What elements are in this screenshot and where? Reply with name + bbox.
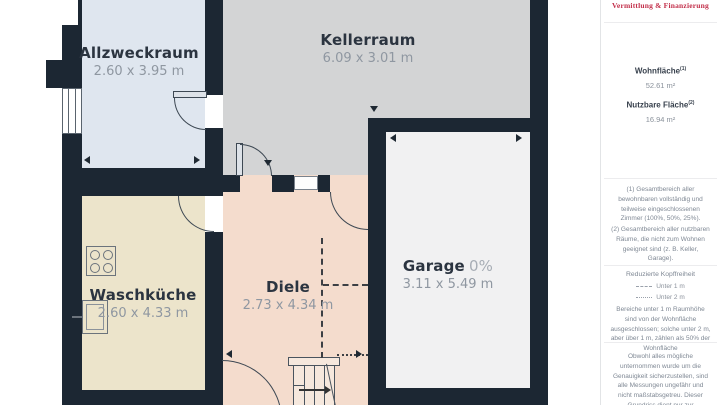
wall (368, 388, 548, 405)
room-name: Kellerraum (320, 31, 415, 49)
wall (368, 118, 548, 132)
stair-tread (314, 366, 315, 405)
wall (46, 60, 62, 88)
divider (604, 265, 717, 266)
wall (318, 175, 330, 192)
cooktop-symbol (86, 246, 116, 276)
disclaimer: Obwohl alles mögliche unternommen wurde … (601, 352, 720, 405)
divider (604, 22, 717, 23)
wall (62, 25, 82, 405)
legend-label: Unter 1 m (656, 283, 685, 290)
door-leaf (173, 91, 207, 98)
room-garage (386, 118, 530, 388)
wall (62, 168, 223, 196)
room-label-allzweckraum: Allzweckraum 2.60 x 3.95 m (79, 44, 199, 79)
wall-niche (294, 176, 318, 190)
dashed-line-sample (636, 286, 652, 287)
stair-tread (294, 385, 304, 386)
room-label-diele: Diele 2.73 x 4.34 m (243, 278, 334, 313)
stair-direction-arrow (299, 389, 325, 391)
room-dimensions: 2.73 x 4.34 m (243, 298, 334, 313)
room-name: Diele (243, 278, 334, 296)
footnote-ref: (2) (688, 100, 694, 106)
wall (205, 232, 223, 405)
divider (604, 342, 717, 343)
wall (205, 0, 223, 95)
legend-label: Unter 2 m (656, 294, 685, 301)
brand-tagline: Vermittlung & Finanzierung (601, 1, 720, 10)
stair-direction-arrow (325, 386, 331, 394)
footnote-ref: (1) (680, 66, 686, 72)
room-name: Allzweckraum (79, 44, 199, 62)
room-label-garage: Garage0% 3.11 x 5.49 m (403, 257, 494, 292)
dimension-arrow (356, 350, 362, 358)
room-area-share: 0% (469, 257, 493, 275)
room-label-waschkueche: Waschküche 2.60 x 4.33 m (89, 286, 196, 321)
dimension-arrow (84, 156, 90, 164)
room-dimensions: 2.60 x 4.33 m (89, 306, 196, 321)
dimension-arrow (390, 134, 396, 142)
room-dimensions: 3.11 x 5.49 m (403, 277, 494, 292)
metric-label-nutzflaeche: Nutzbare Fläche(2) (601, 100, 720, 110)
window-symbol (62, 88, 82, 134)
room-allzweckraum (82, 0, 205, 168)
legend-under-1m: Unter 1 m (601, 283, 720, 290)
headroom-line-under-2m (337, 354, 368, 356)
legend-under-2m: Unter 2 m (601, 294, 720, 301)
wall (530, 0, 548, 405)
dimension-arrow (370, 106, 378, 112)
metric-value-wohnflaeche: 52.61 m² (601, 81, 720, 90)
room-dimensions: 6.09 x 3.01 m (320, 51, 415, 66)
dimension-arrow (226, 350, 232, 358)
room-dimensions: 2.60 x 3.95 m (79, 64, 199, 79)
stair-tread (304, 366, 305, 405)
room-name: Waschküche (89, 286, 196, 304)
info-sidebar: Vermittlung & Finanzierung Wohnfläche(1)… (600, 0, 720, 405)
headroom-title: Reduzierte Kopffreiheit (601, 271, 720, 278)
wall (78, 0, 82, 25)
footnote-2: (2) Gesamtbereich aller nutzbaren Räume,… (601, 225, 720, 264)
floorplan-page: Allzweckraum 2.60 x 3.95 m Kellerraum 6.… (0, 0, 720, 405)
headroom-note: Bereiche unter 1 m Raumhöhe sind von der… (601, 305, 720, 354)
dimension-arrow (264, 160, 272, 166)
footnote-1: (1) Gesamtbereich aller bewohnbaren voll… (601, 185, 720, 224)
floor-plan: Allzweckraum 2.60 x 3.95 m Kellerraum 6.… (0, 0, 600, 405)
dotted-line-sample (636, 297, 652, 298)
sink-tap (72, 316, 82, 318)
metric-value-nutzflaeche: 16.94 m² (601, 115, 720, 124)
divider (604, 178, 717, 179)
room-label-kellerraum: Kellerraum 6.09 x 3.01 m (320, 31, 415, 66)
metric-label-wohnflaeche: Wohnfläche(1) (601, 66, 720, 76)
wall (368, 118, 386, 405)
wall (223, 175, 240, 192)
wall (272, 175, 294, 192)
wall (62, 390, 205, 405)
room-name: Garage0% (403, 257, 494, 275)
dimension-arrow (194, 156, 200, 164)
dimension-arrow (516, 134, 522, 142)
staircase-symbol (288, 357, 340, 366)
